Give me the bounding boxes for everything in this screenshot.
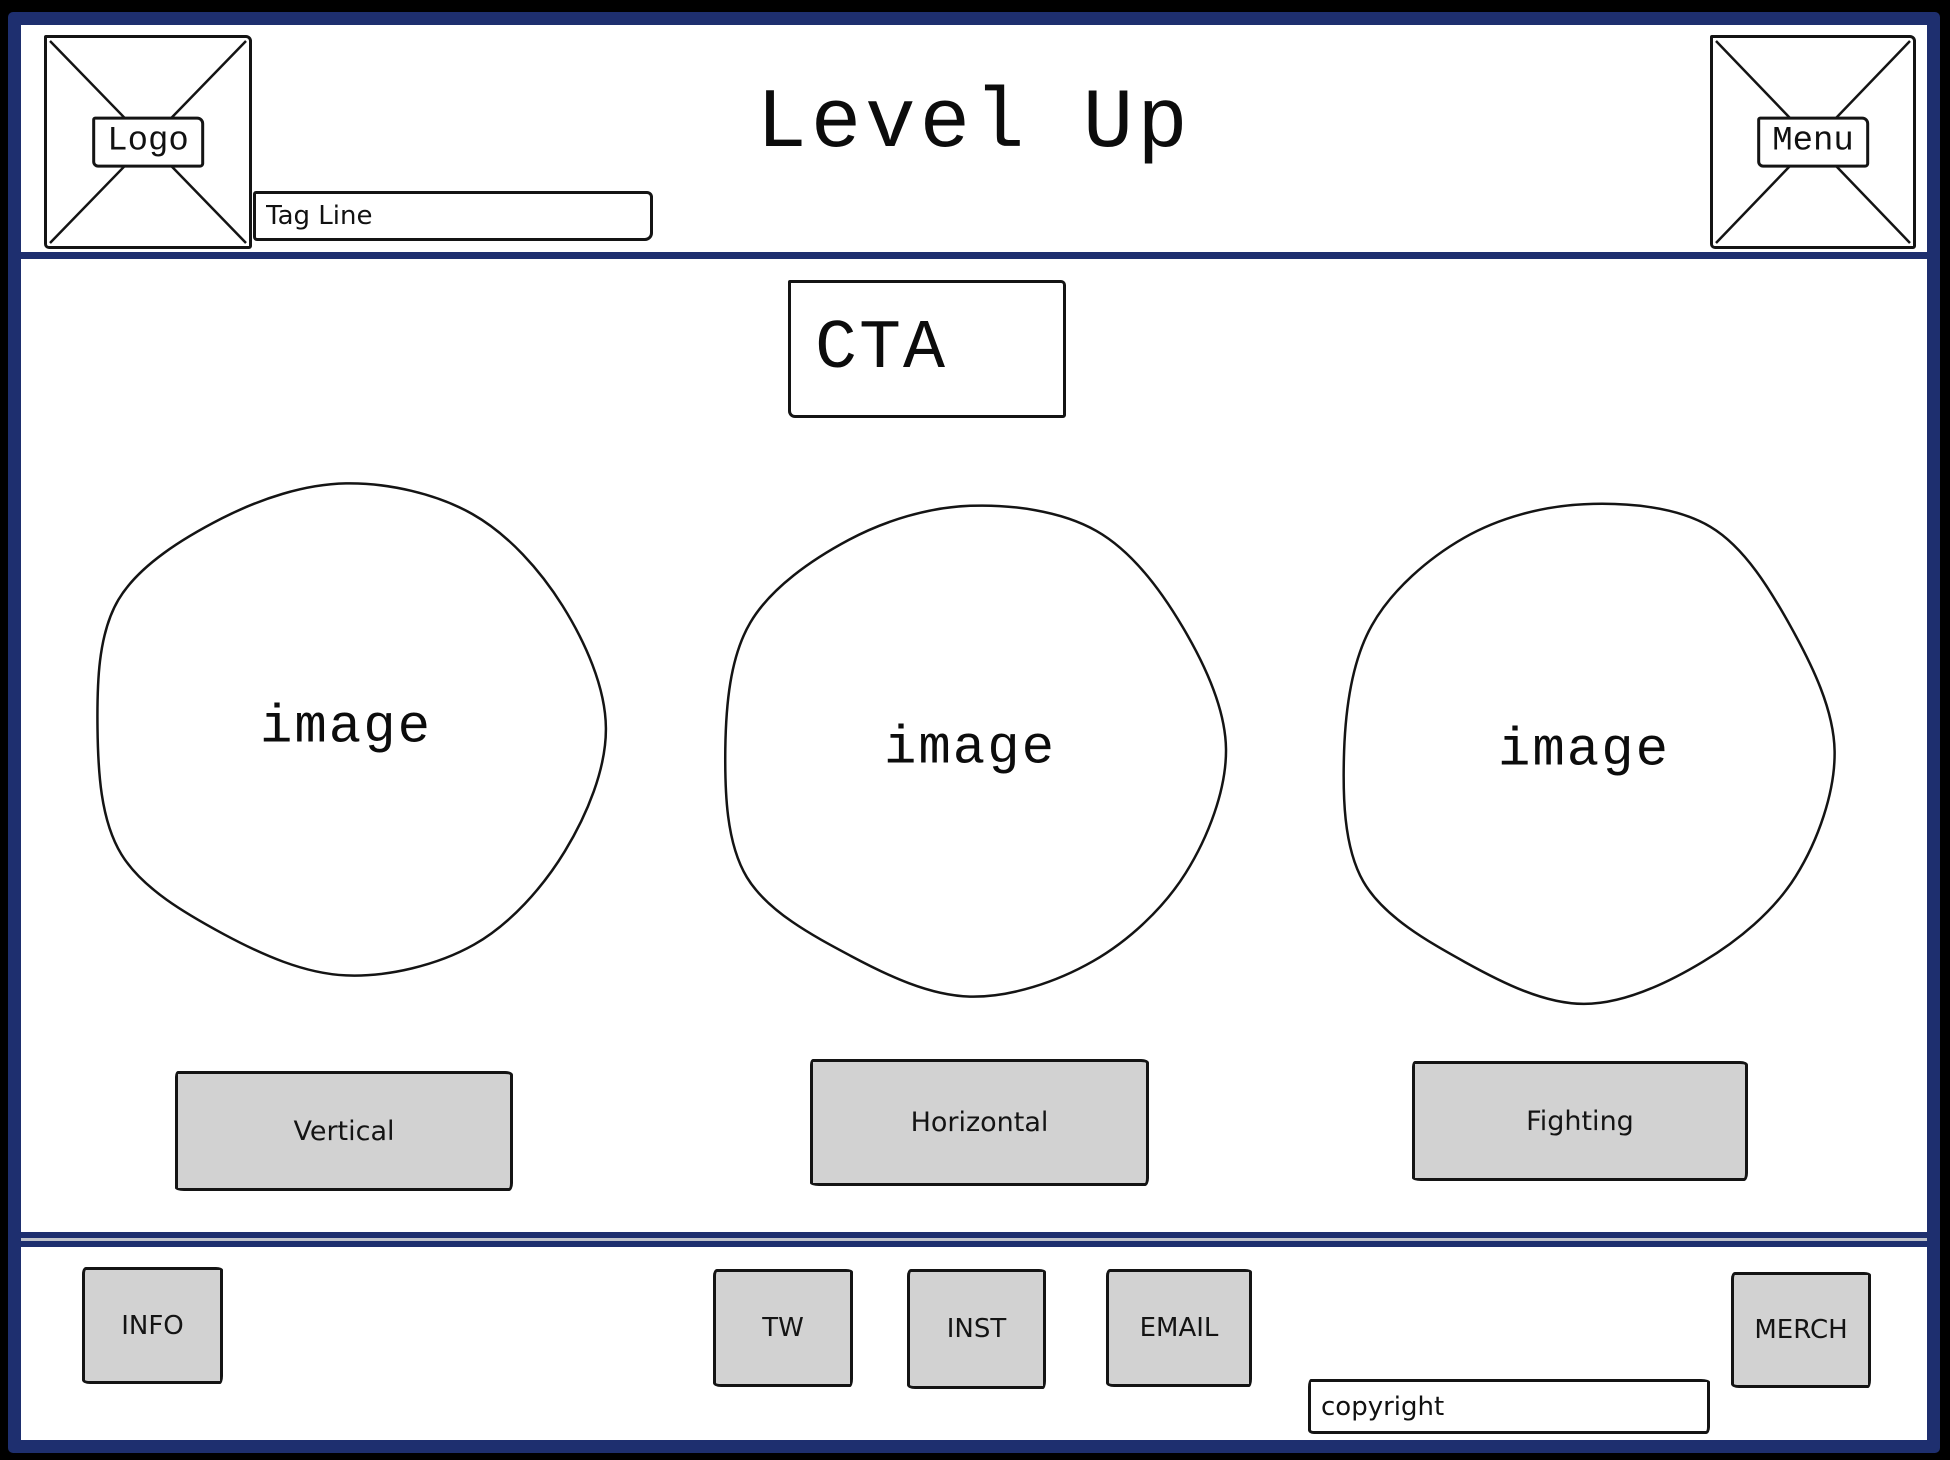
logo-placeholder[interactable]: Logo bbox=[44, 35, 252, 249]
menu-placeholder[interactable]: Menu bbox=[1710, 35, 1916, 249]
wireframe-page: Logo Level Up Menu CTA bbox=[0, 0, 1950, 1460]
info-button[interactable]: INFO bbox=[82, 1267, 223, 1384]
footer: INFO TW INST EMAIL MERCH copyright bbox=[21, 1247, 1927, 1440]
footer-divider bbox=[21, 1232, 1927, 1247]
main-content: CTA image image image Vertical Horizonta… bbox=[21, 259, 1927, 1232]
twitter-button[interactable]: TW bbox=[713, 1269, 853, 1387]
tagline-input[interactable] bbox=[253, 191, 653, 241]
merch-button[interactable]: MERCH bbox=[1731, 1272, 1871, 1388]
image-caption-3: image bbox=[1498, 721, 1670, 782]
header-divider bbox=[21, 252, 1927, 259]
header: Logo Level Up Menu bbox=[21, 25, 1927, 252]
copyright-box: copyright bbox=[1308, 1379, 1710, 1434]
fighting-button[interactable]: Fighting bbox=[1412, 1061, 1748, 1181]
image-caption-1: image bbox=[260, 698, 432, 759]
horizontal-button[interactable]: Horizontal bbox=[810, 1059, 1149, 1186]
page-border-frame: Logo Level Up Menu CTA bbox=[8, 12, 1940, 1453]
vertical-button[interactable]: Vertical bbox=[175, 1071, 513, 1191]
image-caption-2: image bbox=[884, 719, 1056, 780]
page-title: Level Up bbox=[756, 77, 1191, 172]
logo-label: Logo bbox=[92, 117, 204, 168]
instagram-button[interactable]: INST bbox=[907, 1269, 1046, 1389]
email-button[interactable]: EMAIL bbox=[1106, 1269, 1252, 1387]
menu-label: Menu bbox=[1757, 117, 1869, 168]
